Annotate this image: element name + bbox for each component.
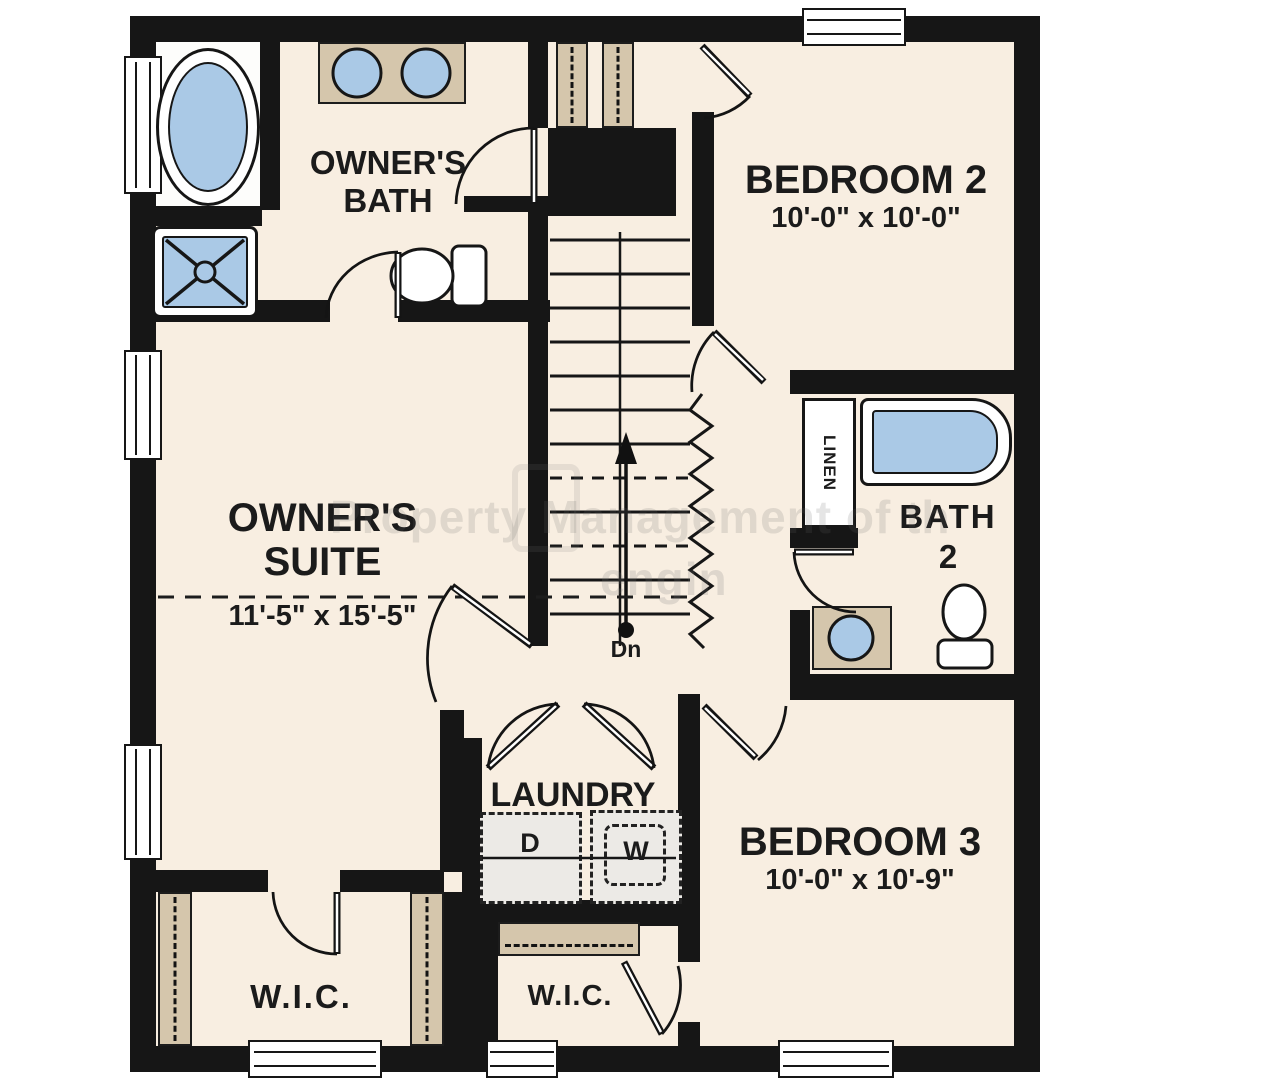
owner-tub-basin — [168, 62, 248, 192]
laundry-label: LAUNDRY — [462, 778, 684, 812]
rod-dashline — [617, 47, 620, 123]
window-pane — [135, 749, 151, 854]
closet-rod — [556, 42, 588, 128]
rod-dashline — [571, 47, 574, 123]
wall-wic-north-right — [340, 870, 444, 892]
bedroom3-dimensions: 10'-0" x 10'-9" — [700, 866, 1020, 895]
window-pane — [490, 1051, 554, 1067]
bedroom2-dimensions: 10'-0" x 10'-0" — [714, 204, 1018, 233]
watermark-line2: engin — [600, 552, 728, 606]
window-pane — [807, 19, 901, 35]
wic-rod-right — [410, 892, 444, 1046]
rod-dashline — [426, 897, 429, 1041]
owners-bath-label-line1: OWNER'S — [258, 146, 518, 179]
window-bedroom3 — [778, 1040, 894, 1078]
wall-stair-west-upper — [528, 42, 548, 128]
wic-center-label: W.I.C. — [500, 982, 640, 1011]
wall-bedroom3-north — [790, 674, 1014, 700]
rod-dashline — [174, 897, 177, 1041]
wall-bedroom2-west — [692, 112, 714, 326]
linen-label: LINEN — [819, 435, 839, 491]
dryer-box — [480, 812, 582, 904]
wall-tub-bottom — [156, 206, 262, 226]
owners-suite-dimensions: 11'-5" x 15'-5" — [150, 602, 495, 631]
wall-between-wics — [444, 892, 478, 1046]
washer-label: W — [606, 838, 666, 865]
bedroom3-label: BEDROOM 3 — [700, 822, 1020, 862]
window-pane — [254, 1051, 376, 1067]
wic-rod-left — [158, 892, 192, 1046]
wic-center-shelf — [498, 922, 640, 956]
shower-pan — [162, 236, 248, 308]
bedroom2-label: BEDROOM 2 — [714, 160, 1018, 200]
window-pane — [135, 62, 151, 188]
bath2-sink-counter — [812, 606, 892, 670]
closet-rod — [602, 42, 634, 128]
floor-plan: LINEN — [0, 0, 1274, 1080]
watermark-line1: Property Management of th — [330, 490, 951, 544]
vanity-counter — [318, 42, 466, 104]
window-suite-upper — [124, 350, 162, 460]
bath2-tub-basin — [872, 410, 998, 474]
window-pane — [135, 355, 151, 455]
wall-wic-north-left — [156, 870, 268, 892]
shelf-dashline — [505, 944, 633, 947]
wall-bath2-west — [790, 610, 810, 674]
dryer-label: D — [500, 830, 560, 857]
window-wic-center — [486, 1040, 558, 1078]
owners-suite-label-line2: SUITE — [150, 542, 495, 582]
window-suite-lower — [124, 744, 162, 860]
wall-bedroom3-west-stub — [678, 1022, 700, 1046]
wall-stair-west-lower — [528, 204, 548, 646]
owners-bath-label-line2: BATH — [258, 184, 518, 217]
wall-suite-east — [440, 710, 464, 872]
window-bedroom2 — [802, 8, 906, 46]
wall-bedroom2-south — [790, 370, 1014, 394]
wic-owner-label: W.I.C. — [196, 980, 406, 1013]
wall-wic-center-west — [478, 926, 498, 1046]
window-wic-owner — [248, 1040, 382, 1078]
window-pane — [783, 1051, 888, 1067]
stairs-down-label: Dn — [596, 638, 656, 661]
bath2-label-line2: 2 — [868, 540, 1028, 573]
wall-closet-mass — [548, 128, 676, 216]
